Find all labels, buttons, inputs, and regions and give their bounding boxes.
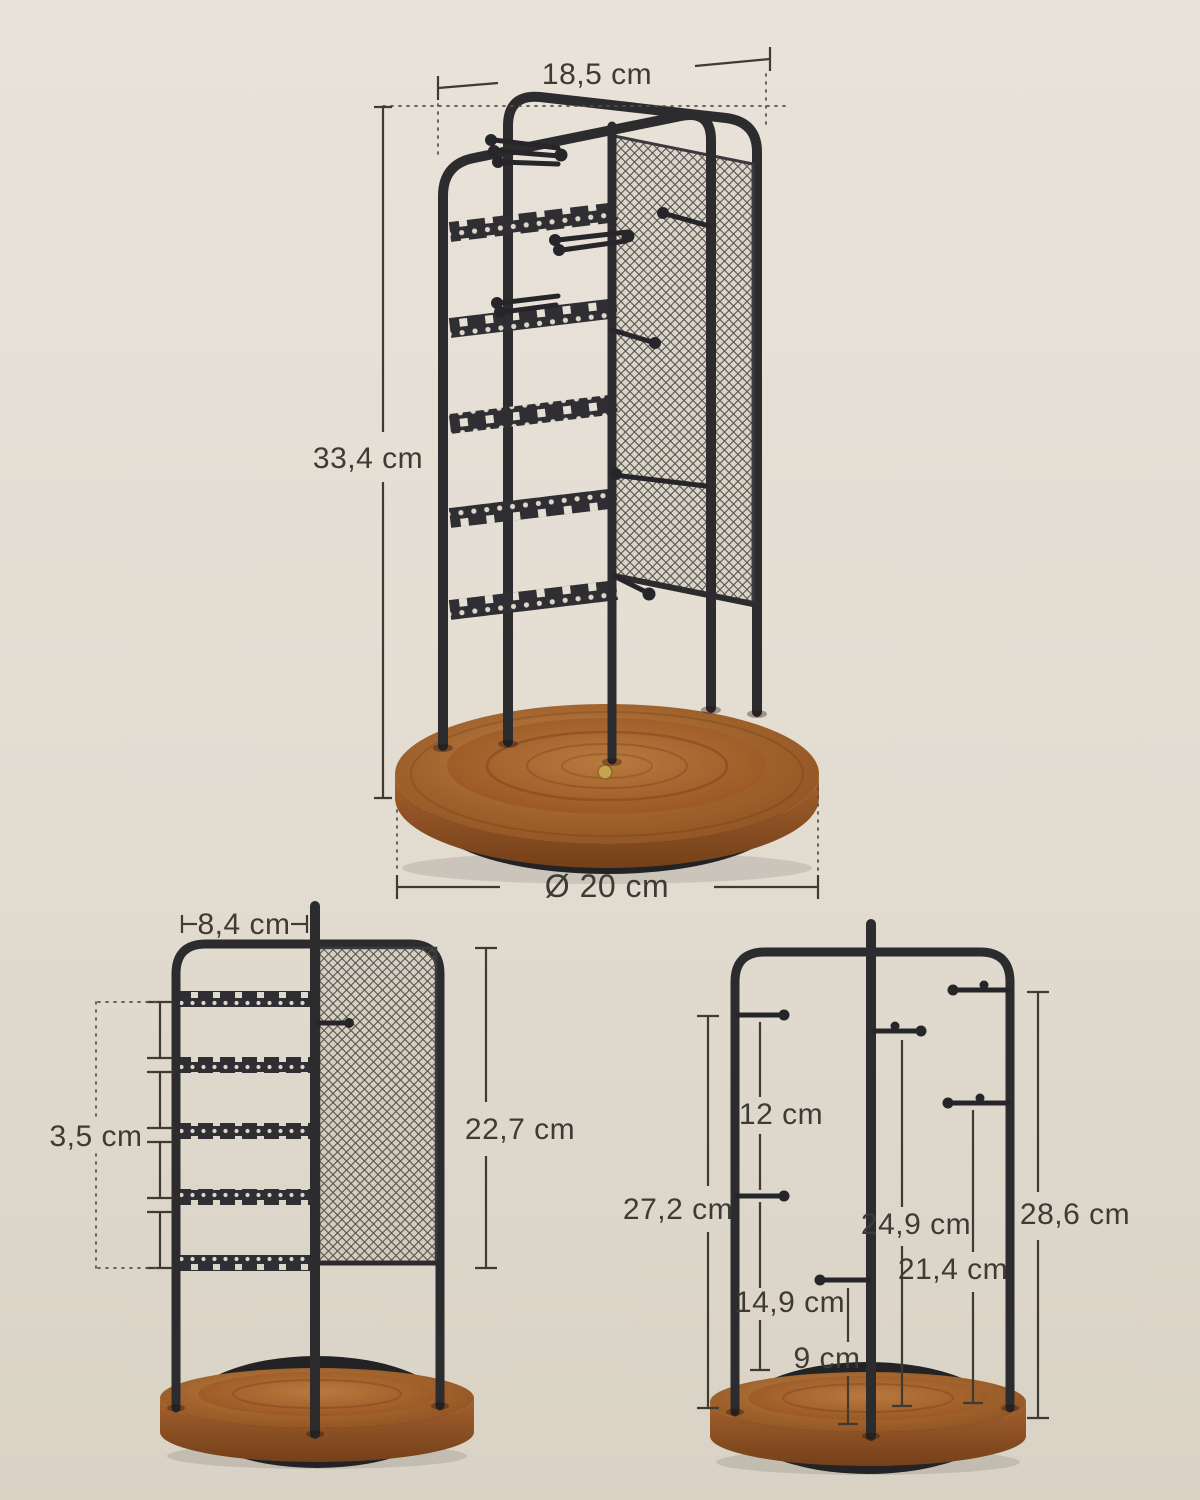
- earring-bar: [180, 991, 313, 1007]
- earring-bar: [449, 580, 618, 620]
- hook-ball: [976, 1094, 985, 1103]
- earring-bar: [449, 298, 618, 338]
- hook-ball: [948, 985, 959, 996]
- earring-bar: [180, 1189, 313, 1205]
- dim-line: [438, 83, 498, 88]
- bar-spacing-ticks: [147, 1002, 173, 1268]
- dimension-label-center-lower-hook: 14,9 cm: [735, 1286, 845, 1319]
- side-view-annotations: 27,2 cm 12 cm 14,9 cm 9 cm 24,9 cm 21,4 …: [623, 992, 1130, 1424]
- leg-shadow: [726, 1409, 744, 1416]
- dimension-label-left-upper-hook: 27,2 cm: [623, 1193, 733, 1226]
- hook-ball: [622, 230, 635, 243]
- leg-shadow: [167, 1405, 185, 1412]
- hook-ball: [553, 244, 565, 256]
- leg-shadow: [701, 706, 721, 714]
- mesh-panel: [319, 948, 436, 1263]
- hook-ball: [649, 337, 661, 349]
- product-dimension-sheet: 18,5 cm 33,4 cm Ø 20 cm: [0, 0, 1200, 1500]
- dimension-label-mesh-height: 22,7 cm: [465, 1113, 575, 1146]
- hook-ball: [980, 981, 989, 990]
- dimension-diagram-svg: 18,5 cm 33,4 cm Ø 20 cm: [0, 0, 1200, 1500]
- brass-button: [598, 765, 612, 779]
- earring-bar: [449, 394, 618, 434]
- leg-shadow: [602, 758, 622, 766]
- side-view: 27,2 cm 12 cm 14,9 cm 9 cm 24,9 cm 21,4 …: [623, 924, 1130, 1475]
- dimension-label-right-upper-hook: 28,6 cm: [1020, 1198, 1130, 1231]
- hook-ball: [494, 306, 506, 318]
- hook-ball: [779, 1191, 790, 1202]
- earring-bar: [180, 1123, 313, 1139]
- mesh-panel: [614, 136, 753, 604]
- leg-shadow: [862, 1433, 880, 1440]
- hook-ball: [485, 134, 497, 146]
- earring-bar: [449, 488, 618, 528]
- hook-ball: [943, 1098, 954, 1109]
- hook-ball: [815, 1275, 826, 1286]
- earring-bars-front: [180, 991, 313, 1271]
- leg-shadow: [498, 740, 518, 748]
- main-perspective-view: 18,5 cm 33,4 cm Ø 20 cm: [313, 47, 819, 904]
- dimension-label-center-upper-hook: 24,9 cm: [861, 1208, 971, 1241]
- front-view: 8,4 cm 3,5 cm 22,7 cm: [49, 906, 575, 1469]
- dimension-label-bar-spacing: 3,5 cm: [49, 1120, 142, 1153]
- leg-shadow: [306, 1431, 324, 1438]
- dimension-label-top-width: 18,5 cm: [542, 58, 652, 91]
- hook-ball: [610, 468, 622, 480]
- earring-bar: [180, 1255, 313, 1271]
- dimension-label-hook-gap: 12 cm: [739, 1098, 823, 1131]
- leg-shadow: [433, 744, 453, 752]
- hook-ball: [891, 1022, 900, 1031]
- leg-shadow: [431, 1403, 449, 1410]
- wooden-base-main: [395, 704, 819, 884]
- hook-ball: [779, 1010, 790, 1021]
- leg-shadow: [747, 710, 767, 718]
- dimension-label-right-lower-hook: 21,4 cm: [898, 1253, 1008, 1286]
- hook-ball: [344, 1018, 354, 1028]
- dimension-label-height: 33,4 cm: [313, 442, 423, 475]
- earring-bar: [180, 1057, 313, 1073]
- earring-bars-main: [449, 202, 618, 620]
- dimension-label-diameter: Ø 20 cm: [545, 868, 669, 904]
- dimension-label-bar-width: 8,4 cm: [197, 908, 290, 941]
- dimension-label-center-bottom-hook: 9 cm: [793, 1342, 860, 1375]
- hook-ball: [492, 156, 504, 168]
- leg-shadow: [1001, 1405, 1019, 1412]
- hook-ball: [657, 207, 669, 219]
- hook-ball: [488, 145, 500, 157]
- hook-ball: [643, 588, 656, 601]
- hook-ball: [555, 149, 568, 162]
- dim-line: [695, 59, 770, 66]
- hook-ball: [916, 1026, 927, 1037]
